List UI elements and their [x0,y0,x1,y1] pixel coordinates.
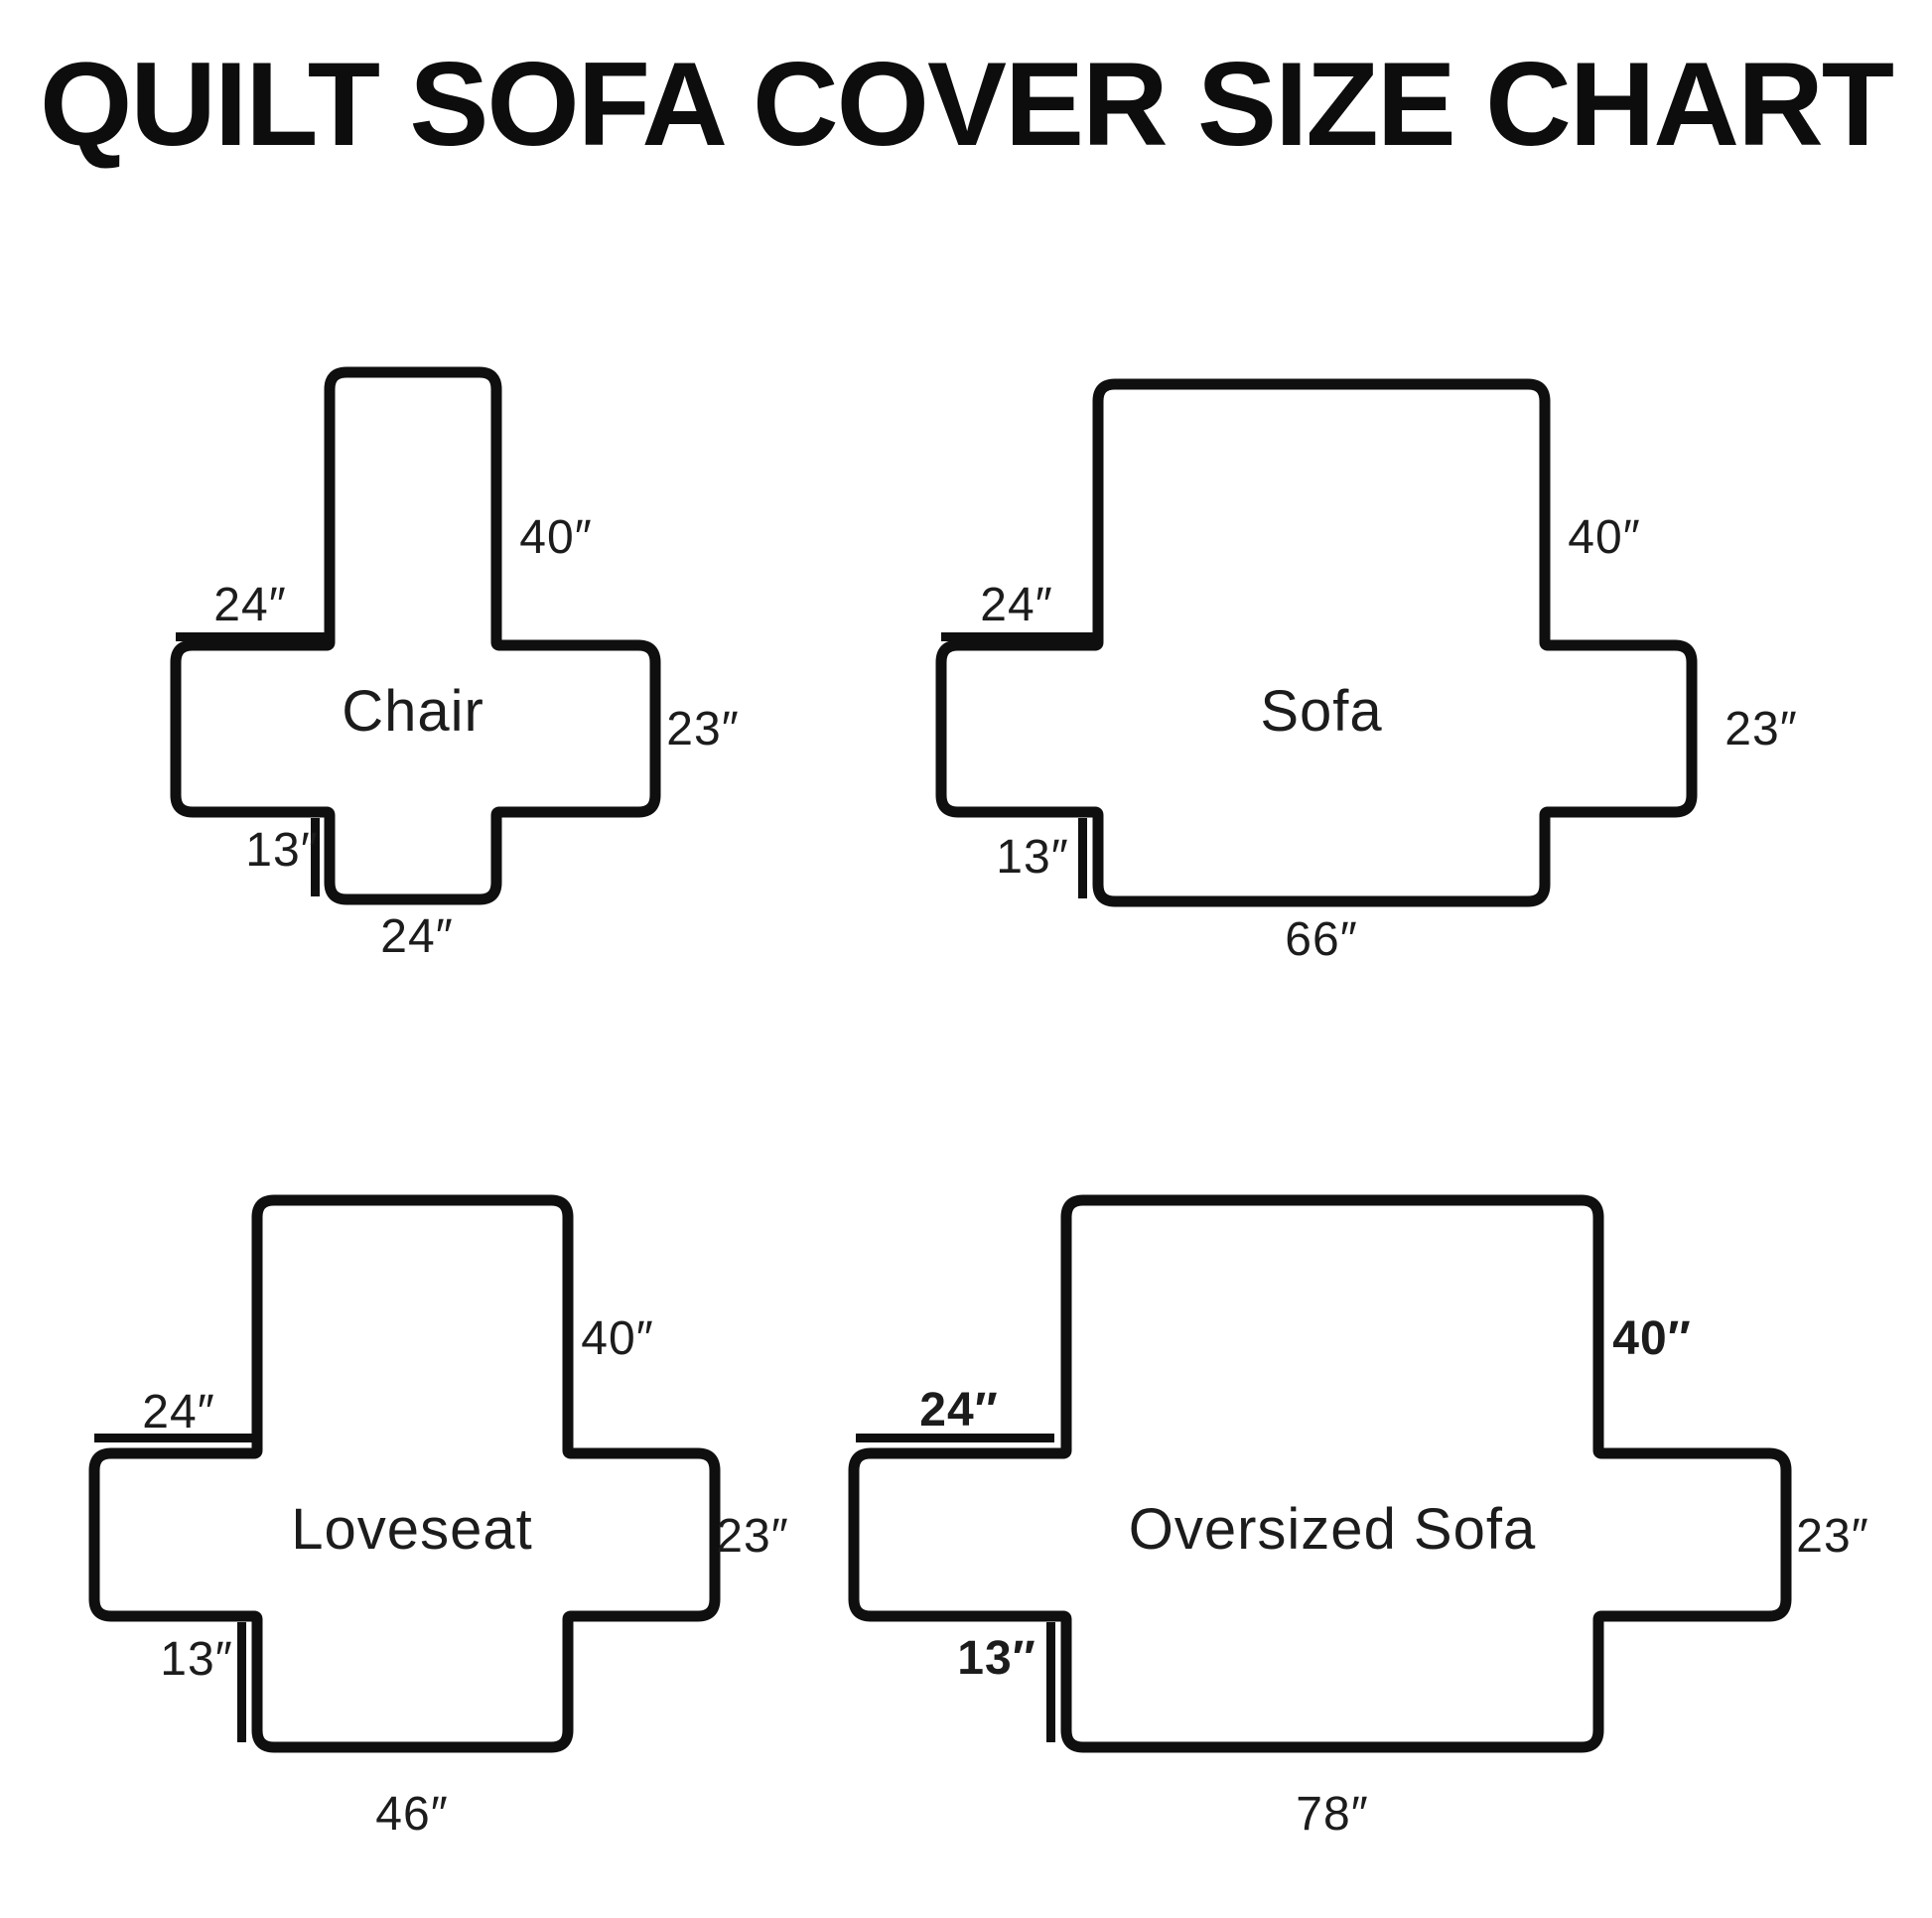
sofa-cover-outline [941,384,1692,901]
oversized-sofa-arm-depth-label: 24″ [919,1384,998,1437]
sofa-arm-depth-label: 24″ [980,579,1052,631]
loveseat-arm-depth-label: 24″ [142,1386,214,1438]
loveseat-skirt-height-label: 13″ [160,1633,232,1686]
chair-arm-depth-dimension-line [176,632,325,641]
oversized-sofa-side-height-label: 23″ [1796,1510,1868,1563]
loveseat-skirt-height-dimension-line [237,1622,246,1742]
oversized-sofa-name-label: Oversized Sofa [1129,1497,1537,1562]
oversized-sofa-back-height-label: 40″ [1612,1312,1691,1365]
sofa-seat-width-label: 66″ [1285,913,1357,966]
sofa-side-height-label: 23″ [1725,703,1797,755]
loveseat-back-height-label: 40″ [581,1312,653,1365]
chair-name-label: Chair [342,679,484,744]
oversized-sofa-skirt-height-label: 13″ [957,1632,1035,1685]
oversized-sofa-seat-width-label: 78″ [1296,1788,1368,1841]
loveseat-name-label: Loveseat [291,1497,532,1562]
loveseat-side-height-label: 23″ [716,1510,788,1563]
chair-side-height-label: 23″ [666,703,739,755]
diagram-sofa: 40″ 24″ 23″ 13″ 66″ Sofa [941,384,1798,966]
diagram-oversized-sofa: 40″ 24″ 23″ 13″ 78″ Oversized Sofa [854,1200,1869,1841]
sofa-name-label: Sofa [1260,679,1382,744]
diagram-loveseat: 40″ 24″ 23″ 13″ 46″ Loveseat [94,1200,789,1841]
size-chart-canvas: 40″ 24″ 23″ 13″ 24″ Chair 40″ 24″ 23″ 13… [0,0,1932,1918]
diagram-chair: 40″ 24″ 23″ 13″ 24″ Chair [176,372,740,963]
oversized-sofa-skirt-height-dimension-line [1046,1622,1055,1742]
sofa-back-height-label: 40″ [1568,511,1640,564]
chair-back-height-label: 40″ [519,511,592,564]
chair-seat-width-label: 24″ [380,910,453,963]
sofa-skirt-height-dimension-line [1078,818,1087,898]
chair-skirt-height-label: 13″ [245,824,318,877]
sofa-arm-depth-dimension-line [941,632,1093,641]
loveseat-seat-width-label: 46″ [375,1788,448,1841]
chair-arm-depth-label: 24″ [213,579,286,631]
sofa-skirt-height-label: 13″ [996,831,1068,884]
